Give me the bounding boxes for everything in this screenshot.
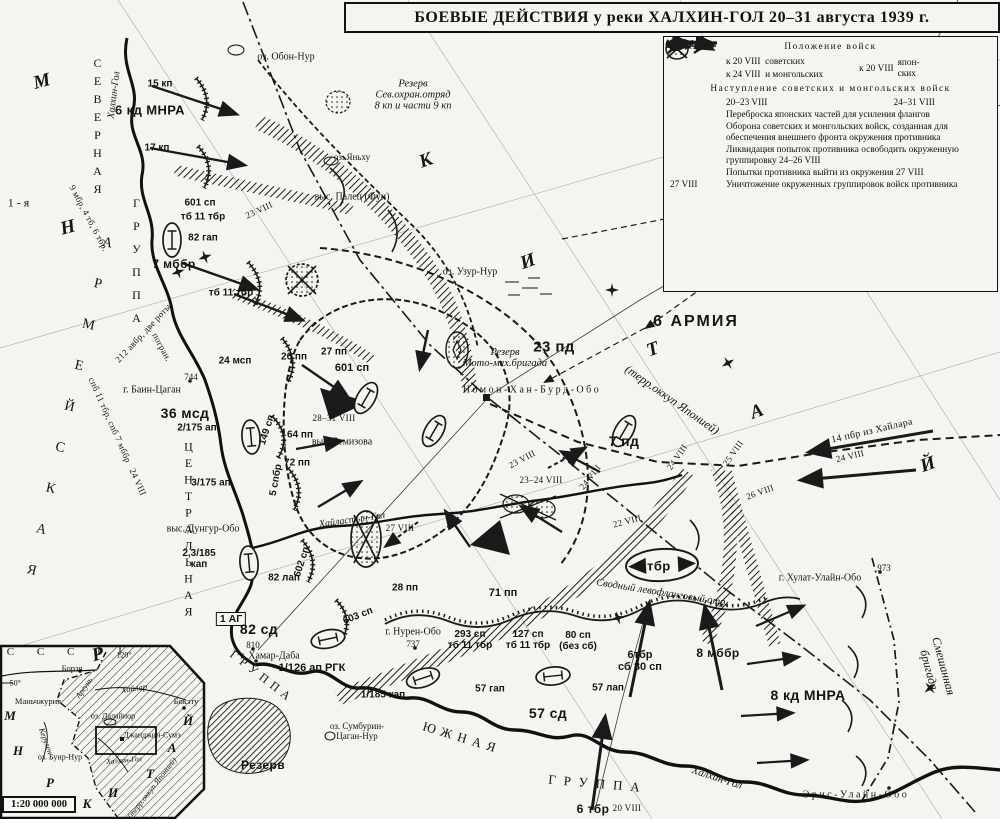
legend-text: Переброска японских частей для усиления … <box>726 110 991 120</box>
legend-text: и монгольских <box>765 70 823 80</box>
map-page: БОЕВЫЕ ДЕЙСТВИЯ у реки ХАЛХИН-ГОЛ 20–31 … <box>0 0 1000 819</box>
legend-date: к 24 VIII <box>726 70 760 80</box>
legend-date: 27 VIII <box>670 180 697 190</box>
inset-map <box>1 646 204 818</box>
legend-text: 24–31 VIII <box>894 98 992 108</box>
legend-positions-row: к 20 VIII советских к 24 VIII и монгольс… <box>670 55 991 82</box>
destruction-icon: 27 VIII <box>670 180 726 190</box>
legend-date: к 20 VIII <box>859 64 893 74</box>
legend-text: Ликвидация попыток противника освободить… <box>726 145 991 166</box>
legend-text: 20–23 VIII <box>726 98 824 108</box>
legend-destruction-row: 27 VIII Уничтожение окруженных группиров… <box>670 180 991 190</box>
map-title: БОЕВЫЕ ДЕЙСТВИЯ у реки ХАЛХИН-ГОЛ 20–31 … <box>344 2 1000 33</box>
legend-panel: Положение войск к 20 VIII советских к 24… <box>663 36 998 292</box>
legend-transfer-row: Переброска японских частей для усиления … <box>670 110 991 120</box>
legend-text: советских <box>765 57 805 67</box>
legend-advance-row: 20–23 VIII 24–31 VIII <box>670 98 991 108</box>
legend-defense-row: Оборона советских и монгольских войск, с… <box>670 122 991 143</box>
legend-text: Уничтожение окруженных группировок войск… <box>726 180 991 190</box>
legend-heading-advance: Наступление советских и монгольских войс… <box>670 84 991 94</box>
legend-text: япон- ских <box>898 58 920 79</box>
legend-text: Попытки противника выйти из окружения 27… <box>726 168 991 178</box>
legend-text: Оборона советских и монгольских войск, с… <box>726 122 991 143</box>
legend-liquidation-row: Ликвидация попыток противника освободить… <box>670 145 991 166</box>
inset-scale: 1:20 000 000 <box>2 796 76 813</box>
legend-breakout-row: Попытки противника выйти из окружения 27… <box>670 168 991 178</box>
legend-date: к 20 VIII <box>726 57 760 67</box>
